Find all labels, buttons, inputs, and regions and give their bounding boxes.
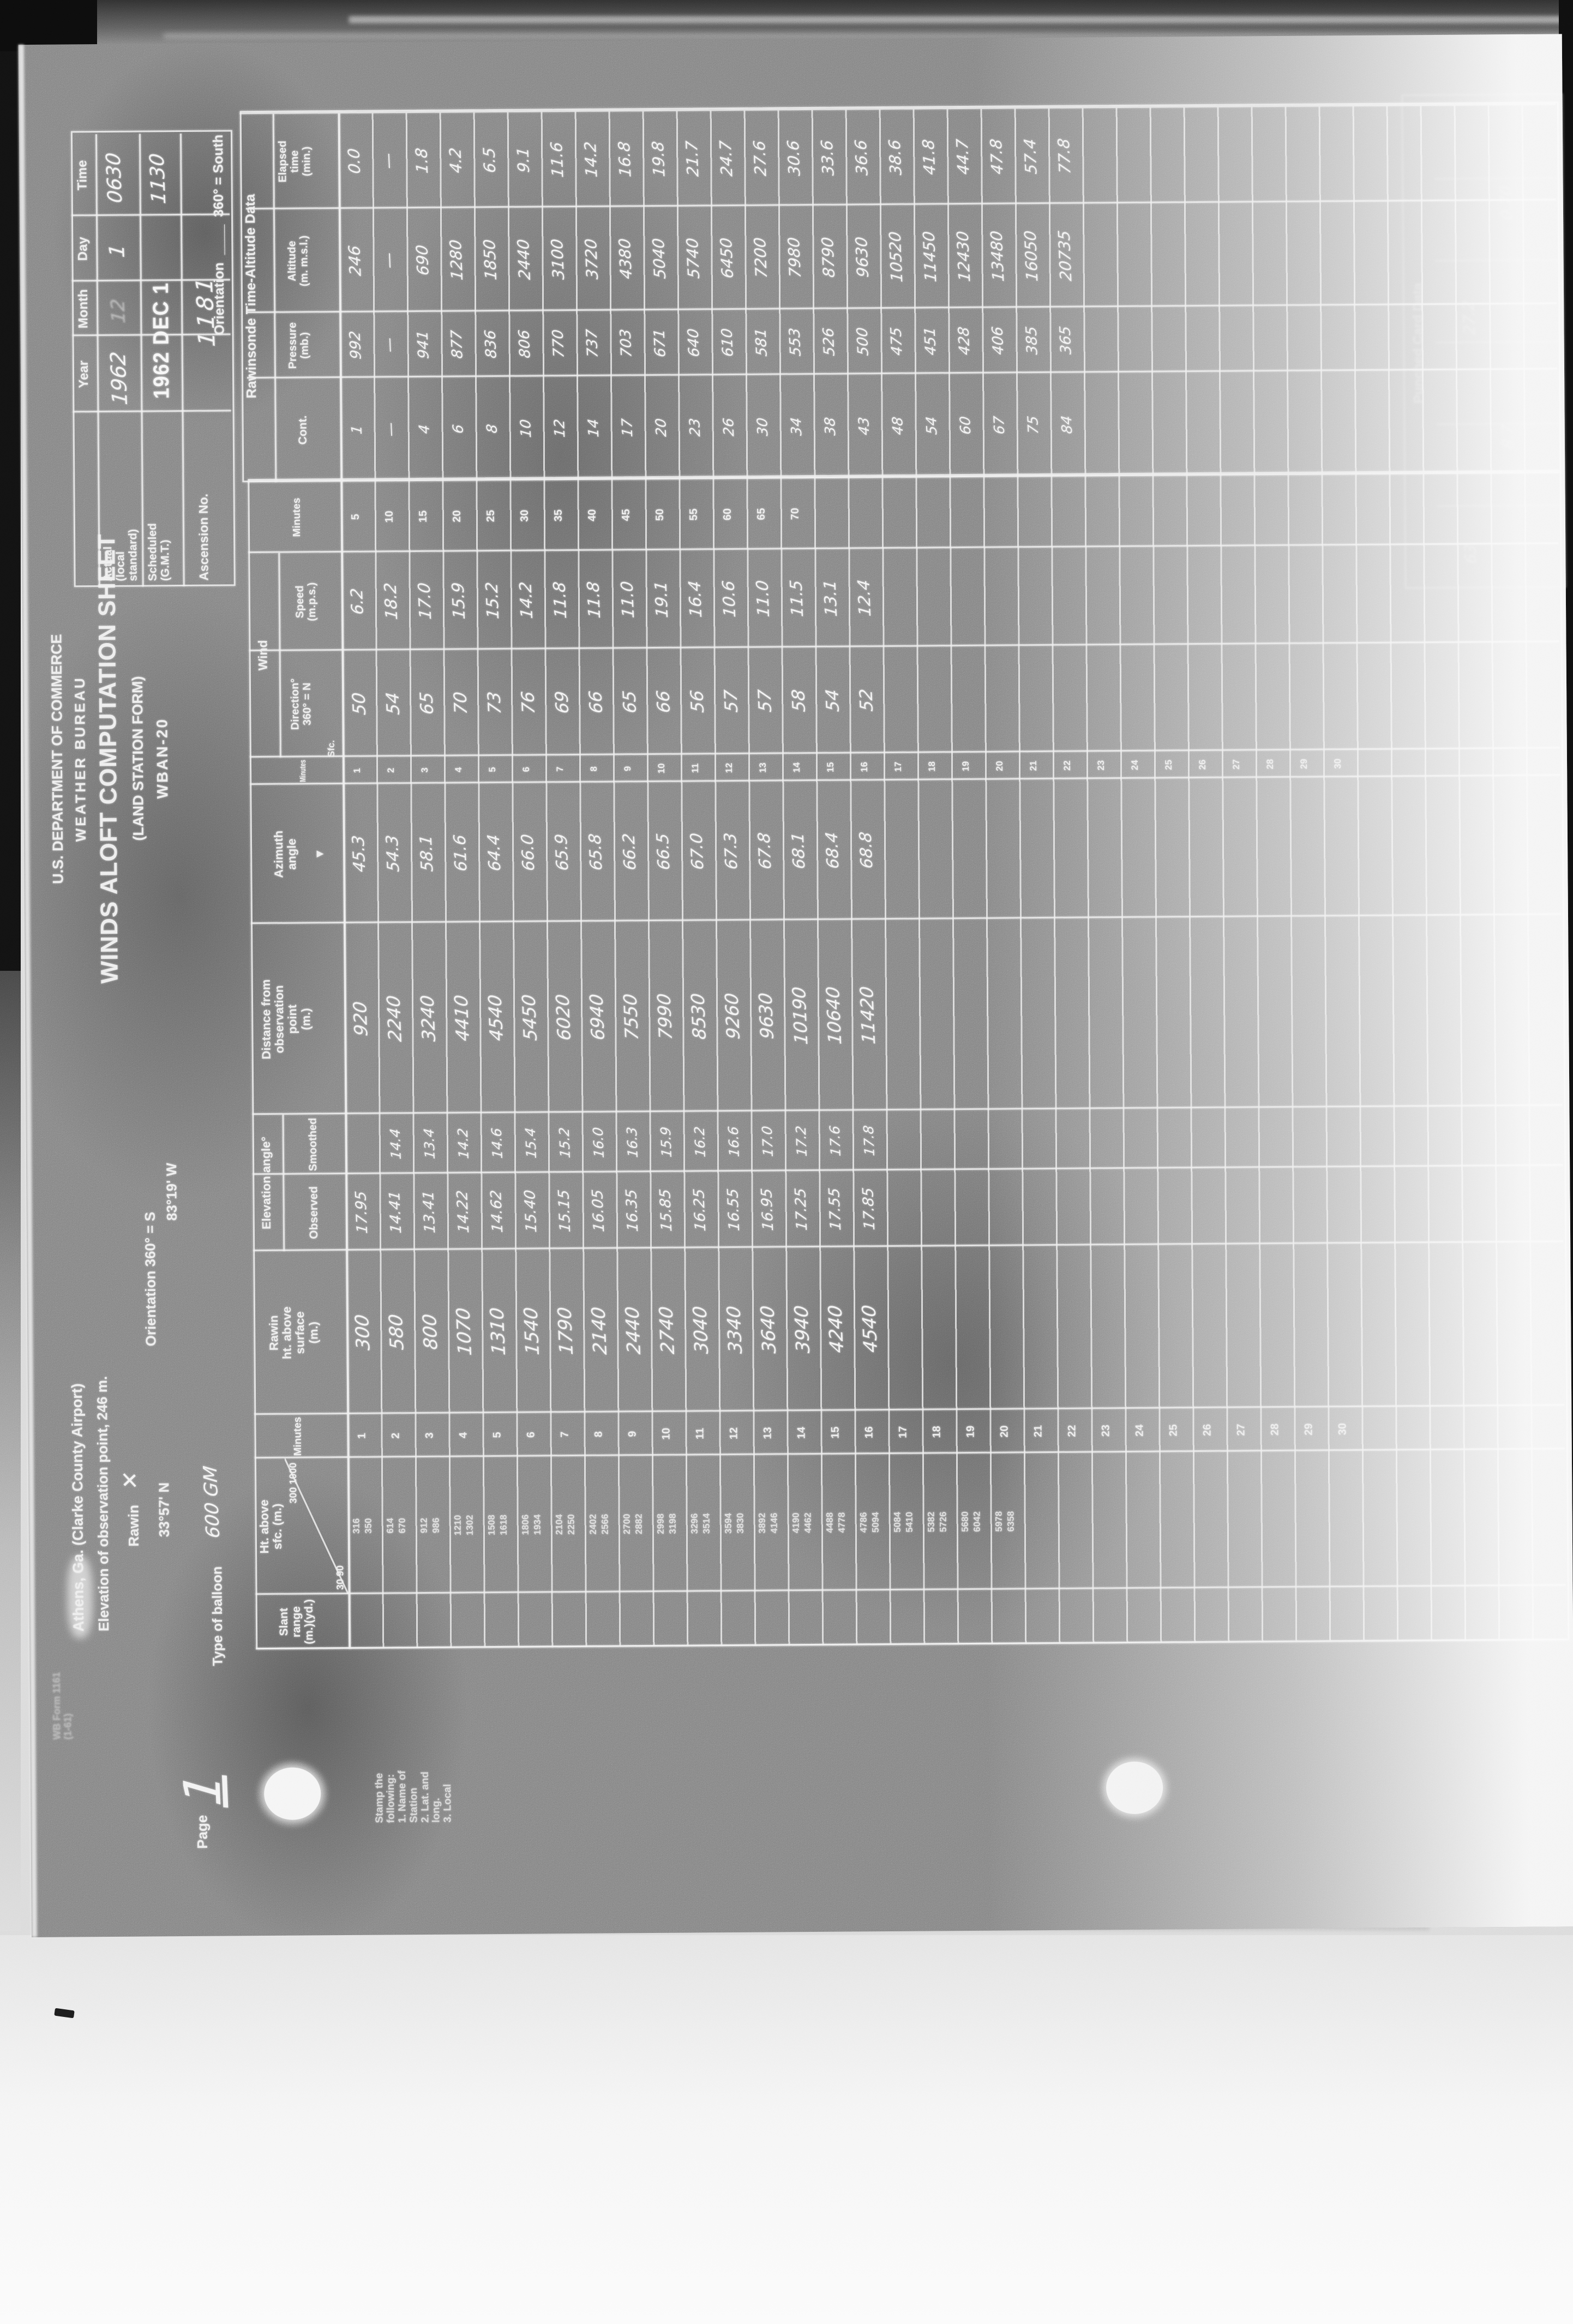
orientation-note: Orientation ____ 360° = South [211, 135, 227, 335]
elev-smoothed-r8: 16.0 [590, 1112, 608, 1173]
header-rawin-ht: Rawinht. abovesurface(m.) [267, 1251, 321, 1415]
minutes-right-r4: 20 [451, 481, 463, 551]
form-number: WBAN-20 [153, 535, 173, 982]
stamp-note: Stamp thefollowing:1. Name ofStation2. L… [374, 1714, 454, 1823]
elev-smoothed-r14: 17.2 [792, 1110, 811, 1172]
minutes-right-r10: 50 [653, 479, 666, 550]
elev-observed-r12: 16.55 [724, 1170, 744, 1249]
diagonal-cell: 300 1000 30 90 [285, 1458, 349, 1595]
pressure-r15: 526 [819, 308, 839, 376]
header-distance: Distance fromobservationpoint(m.) [259, 923, 313, 1115]
pressure-r10: 671 [650, 309, 670, 377]
header-elev-observed: Observed [307, 1174, 320, 1251]
row-minute-r12: 12 [724, 754, 735, 782]
pressure-r16: 500 [853, 308, 873, 376]
pressure-r11: 640 [684, 309, 704, 377]
pressure-r22: 365 [1056, 307, 1076, 374]
punched-value-2: 8.7 [1499, 424, 1518, 450]
minutes-left-r8: 8 [592, 1413, 605, 1456]
scan-edge-left-fade [0, 971, 21, 1931]
sheet-edge-highlight [19, 45, 37, 1937]
actual-time: 0630 [103, 152, 127, 204]
row-minute-r16: 16 [860, 753, 870, 780]
pressure-r6: 806 [515, 310, 535, 378]
row-minute-r8: 8 [589, 755, 599, 783]
minutes-left-r15: 15 [829, 1411, 842, 1455]
row-minute-r26: 26 [1198, 751, 1208, 778]
page-number: 1 [173, 1770, 232, 1808]
pressure-r1: 992 [346, 311, 365, 379]
scan-backing [0, 1935, 1573, 2324]
minutes-left-r9: 9 [626, 1412, 639, 1456]
pressure-r13: 581 [752, 309, 771, 376]
form-subtitle: (LAND STATION FORM) [129, 535, 148, 982]
preprinted-ht-r6: 18061934 [519, 1456, 544, 1593]
minutes-left-r6: 6 [525, 1413, 537, 1457]
minutes-right-r6: 30 [518, 481, 531, 551]
latitude: 33°57' N [156, 1482, 172, 1538]
rawin-label: Rawin [125, 1505, 141, 1547]
preprinted-ht-r19: 56806042 [959, 1454, 984, 1590]
row-minute-r10: 10 [657, 755, 667, 782]
minutes-right-r3: 15 [417, 481, 429, 552]
preprinted-ht-r12: 35943830 [722, 1455, 747, 1592]
minutes-left-r28: 28 [1269, 1408, 1281, 1451]
pressure-r3: 941 [413, 311, 433, 379]
date-col-header: Day [76, 216, 91, 281]
minutes-left-r30: 30 [1336, 1407, 1349, 1451]
minutes-left-r14: 14 [795, 1411, 808, 1455]
pressure-r4: 877 [447, 311, 467, 379]
minutes-right-r1: 5 [349, 482, 362, 553]
scheduled-stamp: 1962 DEC 1 [148, 202, 175, 399]
minutes-right-r13: 65 [755, 479, 767, 550]
azimuth-mark: ▼ [313, 784, 327, 923]
minutes-left-r23: 23 [1100, 1409, 1112, 1452]
header-altitude: Altitude(m. m.s.l.) [286, 209, 310, 313]
date-col-header: Month [76, 281, 91, 336]
pressure-r7: 770 [549, 310, 568, 377]
date-col-header: Year [77, 336, 92, 412]
station-line1: Athens, Ga. (Clarke County Airport) [67, 1031, 87, 1631]
diagonal-upper: 300 1000 [288, 1463, 299, 1504]
page-label: Page [194, 1815, 210, 1849]
row-minute-r6: 6 [521, 756, 532, 783]
elev-observed-r1: 17.95 [352, 1173, 372, 1252]
minutes-left-r25: 25 [1167, 1408, 1180, 1452]
row-minute-r2: 2 [386, 756, 397, 784]
header-ht-sfc: Ht. abovesfc. (m.) [257, 1458, 285, 1595]
preprinted-ht-r1: 316350 [350, 1458, 375, 1594]
preprinted-ht-r16: 47865094 [857, 1454, 882, 1590]
row-minute-r9: 9 [623, 755, 633, 782]
row-minute-r20: 20 [995, 752, 1005, 779]
row-minute-r28: 28 [1265, 750, 1276, 778]
scan-edge-left [0, 0, 21, 971]
elev-smoothed-r9: 16.3 [623, 1112, 642, 1173]
header-elev-smoothed: Smoothed [307, 1114, 319, 1174]
row-minute-r15: 15 [826, 754, 836, 781]
preprinted-ht-r9: 27002882 [621, 1456, 646, 1592]
row-minute-r11: 11 [691, 754, 701, 782]
row-minute-r18: 18 [927, 753, 938, 780]
elev-observed-r4: 14.22 [453, 1173, 473, 1251]
actual-day: 1 [105, 243, 129, 259]
preprinted-ht-r8: 24022566 [587, 1456, 612, 1593]
header-minutes-3: Minutes [291, 482, 303, 553]
header-slant: Slantrange(m.)(yd.) [278, 1594, 316, 1649]
pressure-r17: 475 [887, 308, 906, 375]
minutes-right-r7: 35 [552, 480, 565, 551]
preprinted-ht-r2: 614670 [384, 1457, 409, 1594]
pressure-r20: 406 [988, 307, 1008, 375]
elev-observed-r8: 16.05 [589, 1172, 609, 1250]
elev-smoothed-r15: 17.6 [826, 1110, 845, 1172]
minutes-left-r1: 1 [356, 1414, 368, 1458]
actual-label: Actual(localstandard) [101, 418, 140, 581]
preprinted-ht-r14: 41904462 [790, 1455, 815, 1591]
minutes-left-r17: 17 [897, 1410, 909, 1454]
balloon-value: 600 GM [200, 1465, 225, 1539]
agency-line: WEATHER BUREAU [71, 535, 89, 982]
row-minute-r22: 22 [1062, 752, 1073, 779]
elev-observed-r13: 16.95 [758, 1170, 778, 1249]
minutes-left-r21: 21 [1032, 1409, 1044, 1453]
station-line2: Elevation of observation point, 246 m. [92, 1031, 111, 1631]
preprinted-ht-r4: 12101302 [452, 1457, 477, 1593]
pressure-r12: 610 [718, 309, 737, 376]
scan-corner-black [0, 0, 97, 51]
punched-value-3: 27.2 [1460, 299, 1479, 335]
header-minutes-1: Minutes [292, 1414, 304, 1458]
header-azimuth: Azimuthangle [272, 785, 299, 924]
preprinted-ht-r11: 32963514 [688, 1455, 713, 1592]
form-footer: WB Form 1161(1-61) [51, 1630, 74, 1739]
minutes-left-r3: 3 [423, 1414, 436, 1457]
minutes-right-r8: 40 [586, 480, 598, 551]
preprinted-ht-r18: 53825726 [925, 1454, 950, 1590]
minutes-left-r27: 27 [1235, 1408, 1247, 1451]
pressure-r5: 836 [481, 310, 501, 378]
elev-smoothed-r16: 17.8 [860, 1110, 879, 1172]
minutes-right-r9: 45 [620, 479, 632, 550]
agency-line: U.S. DEPARTMENT OF COMMERCE [48, 536, 67, 983]
preprinted-ht-r5: 15081618 [485, 1457, 511, 1593]
row-minute-r1: 1 [352, 757, 363, 784]
row-minute-r19: 19 [961, 753, 971, 780]
elev-observed-r5: 14.62 [487, 1172, 507, 1251]
preprinted-ht-r13: 38924146 [756, 1455, 781, 1591]
header-elapsed: Elapsedtime(min.) [277, 113, 313, 209]
minutes-left-r22: 22 [1066, 1409, 1078, 1453]
minutes-left-r13: 13 [761, 1411, 774, 1455]
elev-smoothed-r5: 14.6 [488, 1112, 507, 1174]
row-minute-r7: 7 [555, 755, 566, 783]
row-minute-r27: 27 [1232, 750, 1242, 778]
punched-value-1: 63 [1462, 543, 1480, 565]
header-elev-group: Elevation angle° [259, 1115, 273, 1251]
row-minute-r4: 4 [454, 756, 464, 783]
elev-observed-r15: 17.55 [825, 1170, 845, 1248]
minutes-left-r16: 16 [863, 1410, 875, 1454]
header-pressure: Pressure(mb.) [286, 313, 311, 378]
header-minutes-2: Minutes [299, 759, 308, 783]
date-col-header: Time [75, 134, 90, 216]
pressure-r19: 428 [954, 307, 974, 375]
elev-smoothed-r13: 17.0 [759, 1110, 777, 1172]
minutes-right-r5: 25 [484, 481, 497, 551]
minutes-left-r19: 19 [964, 1410, 977, 1454]
actual-month: 12 [107, 298, 130, 323]
preprinted-ht-r20: 59786358 [993, 1453, 1018, 1589]
minutes-right-r2: 10 [383, 481, 395, 552]
diagonal-lower: 30 90 [335, 1565, 346, 1590]
row-minute-r24: 24 [1130, 752, 1140, 779]
header-cont: Cont. [296, 378, 309, 482]
elev-observed-r2: 14.41 [386, 1173, 406, 1251]
elev-observed-r10: 15.85 [656, 1171, 676, 1250]
minutes-left-r18: 18 [930, 1410, 943, 1454]
elev-observed-r11: 16.25 [690, 1171, 710, 1250]
minutes-right-r14: 70 [789, 478, 801, 549]
minutes-left-r24: 24 [1133, 1409, 1146, 1452]
elev-observed-r14: 17.25 [791, 1170, 812, 1248]
elev-smoothed-r10: 15.9 [657, 1111, 676, 1173]
minutes-right-r11: 55 [687, 479, 700, 550]
row-minute-r21: 21 [1029, 752, 1039, 779]
minutes-left-r11: 11 [694, 1412, 706, 1455]
elev-smoothed-r4: 14.2 [454, 1113, 473, 1174]
pressure-r8: 737 [583, 310, 602, 377]
minutes-left-r10: 10 [660, 1412, 673, 1456]
preprinted-ht-r17: 50845410 [891, 1454, 916, 1590]
punch-hole-2 [1106, 1762, 1163, 1815]
minutes-left-r20: 20 [998, 1409, 1011, 1453]
header-wind-group: Wind [255, 553, 271, 758]
elev-smoothed-r3: 13.4 [421, 1113, 439, 1174]
elev-observed-r7: 15.15 [555, 1172, 575, 1250]
scheduled-label: Scheduled(G.M.T.) [146, 417, 172, 581]
elev-smoothed-r2: 14.4 [387, 1113, 405, 1175]
minutes-left-r26: 26 [1201, 1408, 1214, 1452]
pressure-r18: 451 [921, 308, 940, 375]
preprinted-ht-r7: 21042250 [553, 1456, 578, 1593]
elev-observed-r3: 13.41 [419, 1173, 440, 1251]
elev-smoothed-r6: 15.4 [522, 1112, 541, 1174]
elev-observed-r9: 16.35 [622, 1171, 643, 1250]
longitude: 83°19' W [164, 1163, 179, 1221]
surface-label: Sfc. [326, 724, 337, 757]
minutes-left-r4: 4 [457, 1413, 470, 1457]
pressure-r2: — [380, 311, 399, 379]
row-minute-r29: 29 [1299, 750, 1310, 778]
row-minute-r13: 13 [758, 754, 769, 782]
pressure-r14: 553 [785, 308, 805, 376]
rawin-check: ✕ [117, 1470, 143, 1491]
minutes-left-r2: 2 [389, 1414, 402, 1457]
header-wind-speed: Speed(m.p.s.) [293, 553, 318, 651]
actual-year: 1962 [106, 351, 132, 406]
header-wind-direction: Direction°360° = N [289, 651, 314, 757]
punched-value-4: 0.70 [1497, 185, 1517, 221]
scanned-document-page: { "document": { "agency_line1": "U.S. DE… [0, 0, 1573, 2324]
preprinted-ht-r15: 44884778 [824, 1455, 849, 1591]
row-minute-r23: 23 [1096, 752, 1107, 779]
punch-hole-1 [264, 1767, 321, 1820]
scan-streak [349, 16, 1573, 23]
row-minute-r17: 17 [893, 753, 904, 780]
minutes-left-r12: 12 [728, 1412, 740, 1455]
ascension-label: Ascension No. [196, 417, 211, 581]
pressure-r9: 703 [616, 310, 636, 377]
minutes-left-r5: 5 [491, 1413, 503, 1457]
row-minute-r14: 14 [792, 754, 802, 781]
row-minute-r25: 25 [1164, 751, 1174, 778]
elev-observed-r6: 15.40 [521, 1172, 541, 1251]
row-minute-r3: 3 [420, 756, 430, 784]
preprinted-ht-r10: 29983198 [655, 1456, 680, 1592]
elev-smoothed-r7: 15.2 [556, 1112, 574, 1173]
minutes-right-r12: 60 [721, 479, 734, 550]
elev-observed-r16: 17.85 [859, 1169, 879, 1248]
form-sheet: U.S. DEPARTMENT OF COMMERCEWEATHER BUREA… [19, 34, 1573, 1937]
elev-smoothed-r12: 16.6 [725, 1110, 743, 1172]
minutes-left-r7: 7 [559, 1413, 571, 1456]
orientation-station: Orientation 360° = S [142, 1212, 159, 1347]
pressure-r21: 385 [1022, 307, 1042, 374]
scheduled-time: 1130 [146, 152, 171, 205]
row-minute-r30: 30 [1333, 750, 1343, 777]
row-minute-r5: 5 [488, 756, 498, 783]
balloon-label: Type of balloon [210, 1566, 226, 1666]
preprinted-ht-r3: 912986 [418, 1457, 443, 1594]
minutes-left-r29: 29 [1302, 1408, 1315, 1451]
elev-smoothed-r11: 16.2 [691, 1111, 710, 1173]
